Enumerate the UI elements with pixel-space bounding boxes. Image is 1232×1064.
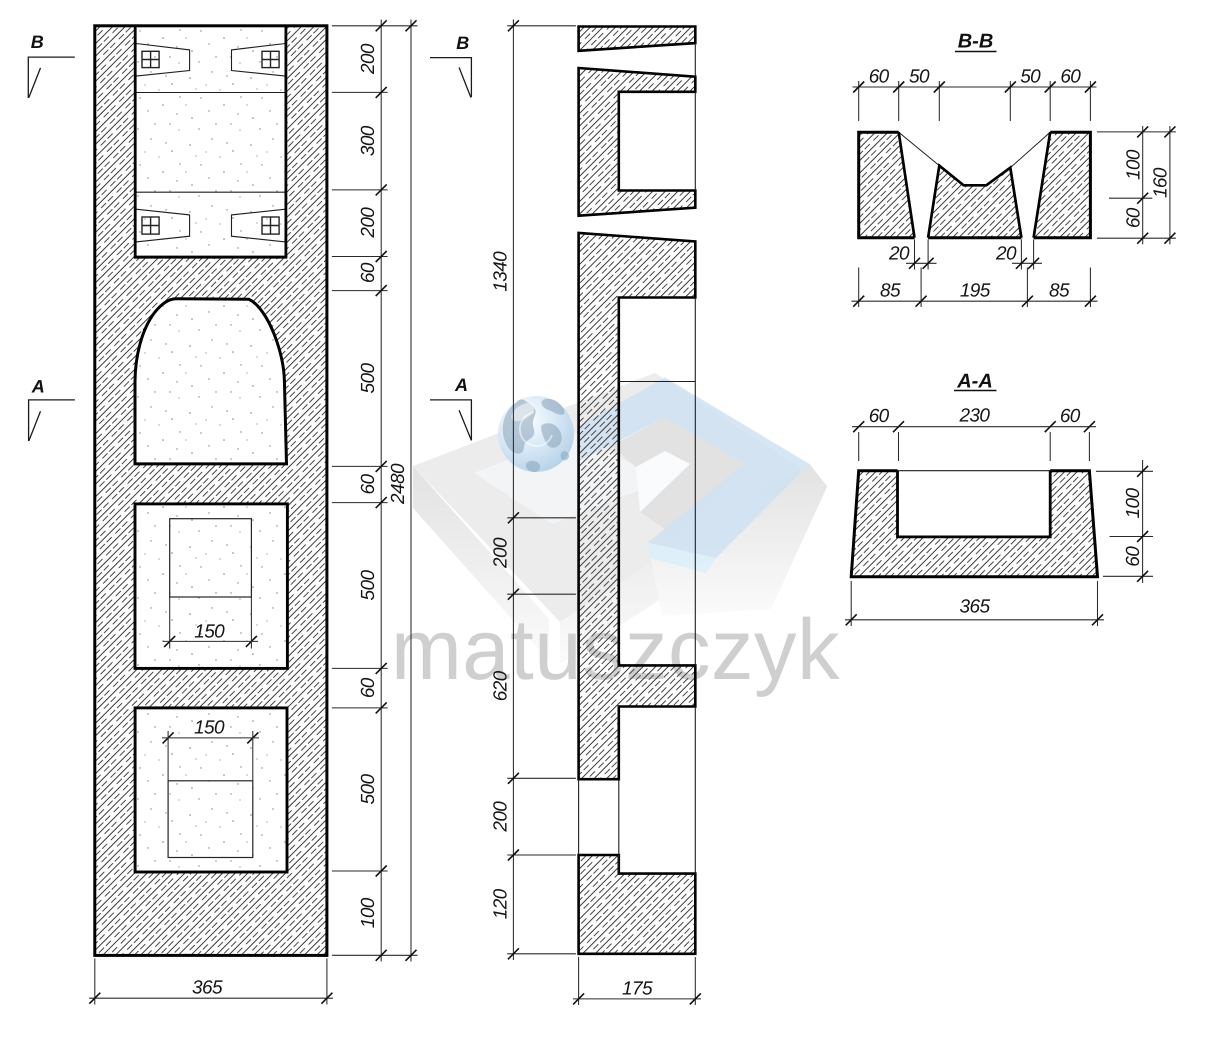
- svg-text:B: B: [31, 32, 44, 52]
- svg-text:200: 200: [358, 207, 379, 239]
- svg-text:365: 365: [960, 597, 991, 618]
- svg-text:195: 195: [960, 281, 991, 302]
- svg-text:60: 60: [1124, 207, 1145, 228]
- svg-text:160: 160: [1151, 167, 1172, 198]
- svg-text:100: 100: [1124, 149, 1145, 180]
- svg-text:60: 60: [1123, 546, 1144, 567]
- svg-text:A-A: A-A: [956, 371, 993, 393]
- svg-text:A: A: [454, 375, 468, 395]
- svg-text:B: B: [456, 33, 469, 53]
- svg-text:175: 175: [622, 978, 653, 999]
- svg-text:500: 500: [358, 774, 379, 805]
- svg-text:60: 60: [1060, 66, 1081, 87]
- svg-text:300: 300: [358, 125, 379, 156]
- svg-text:85: 85: [1049, 281, 1070, 302]
- svg-text:60: 60: [358, 262, 379, 283]
- svg-text:B-B: B-B: [958, 31, 994, 53]
- svg-text:120: 120: [491, 888, 512, 919]
- svg-text:230: 230: [958, 406, 990, 427]
- svg-text:500: 500: [358, 570, 379, 601]
- svg-text:A: A: [31, 377, 45, 397]
- svg-text:20: 20: [995, 244, 1017, 265]
- svg-text:365: 365: [192, 978, 223, 999]
- svg-text:60: 60: [869, 406, 890, 427]
- svg-text:85: 85: [880, 281, 901, 302]
- svg-text:1340: 1340: [491, 251, 512, 292]
- svg-text:60: 60: [869, 66, 890, 87]
- svg-text:60: 60: [358, 677, 379, 698]
- svg-text:60: 60: [1060, 406, 1081, 427]
- svg-text:200: 200: [491, 537, 512, 569]
- svg-text:100: 100: [1123, 488, 1144, 519]
- svg-text:2480: 2480: [388, 463, 409, 505]
- svg-text:620: 620: [491, 670, 512, 701]
- svg-text:200: 200: [491, 801, 512, 833]
- svg-text:200: 200: [358, 43, 379, 75]
- svg-text:100: 100: [358, 897, 379, 928]
- svg-text:50: 50: [1020, 66, 1041, 87]
- svg-text:20: 20: [888, 244, 910, 265]
- svg-text:150: 150: [194, 718, 225, 739]
- svg-text:500: 500: [358, 363, 379, 394]
- svg-text:150: 150: [194, 622, 225, 643]
- svg-text:60: 60: [358, 474, 379, 495]
- svg-text:50: 50: [909, 66, 930, 87]
